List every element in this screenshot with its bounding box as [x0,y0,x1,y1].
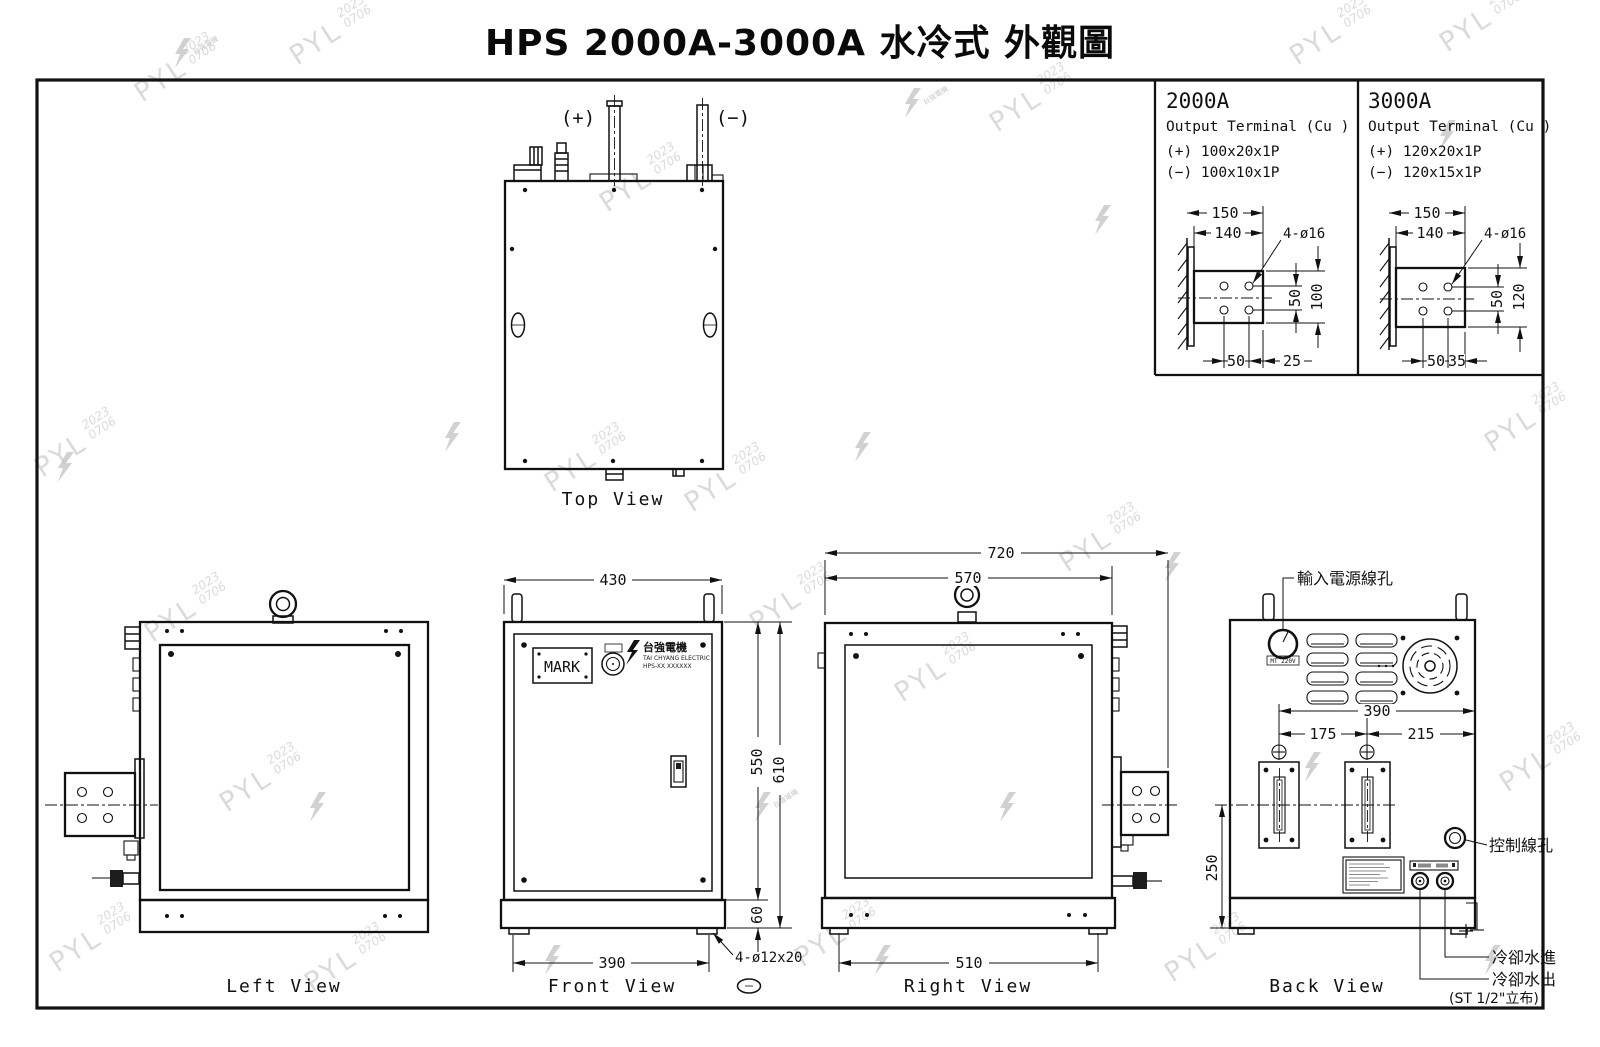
cable-gland [125,627,140,649]
water-inlet-fitting [1437,873,1453,889]
lightning-logo-icon [626,640,640,665]
dim-720: 720 [987,544,1014,562]
dim-510: 510 [955,954,982,972]
spec-plate [1343,857,1404,893]
plus-spec: (+) 120x20x1P [1368,144,1482,160]
side-panel [160,645,409,890]
power-inlet-hole: MT 220V [1267,630,1299,665]
cabinet-base [501,900,725,928]
hinge [818,653,1119,711]
cooling-fan [1401,636,1460,696]
technical-drawing: 台強電機 台強電機 台強電機 2000A Output Terminal (Cu… [0,0,1600,1047]
drain-bracket [1459,903,1484,938]
cabinet-outline [825,623,1112,898]
drawing-sheet: PYL20230706 PYL20230706 PYL20230706 PYL2… [0,0,1600,1047]
cable-gland [1112,626,1127,647]
slot-note: 4-ø12x20 [735,950,802,966]
lifting-post [1456,594,1467,620]
dim-25: 25 [1283,352,1301,370]
top-view-label: Top View [562,489,665,510]
water-pipe [1112,872,1162,889]
busbar-plate [1194,271,1263,323]
dim-610: 610 [770,756,788,783]
logo-chinese: 台強電機 [643,640,687,654]
watermark-company: 台強電機 [921,84,949,107]
dim-390: 390 [1363,702,1390,720]
dim-550: 550 [748,748,766,775]
side-handle [511,313,717,337]
inlet-label: MT 220V [1270,658,1296,665]
back-view-label: Back View [1269,976,1385,997]
side-panel [845,645,1092,878]
gland-fitting [124,841,138,860]
water-out-annotation: 冷卻水出 [1492,970,1556,989]
dim-150: 150 [1211,204,1238,222]
lifting-post [1263,594,1274,620]
lifting-post [704,594,714,622]
front-view-label: Front View [548,976,676,997]
dim-35: 35 [1448,352,1466,370]
model-label-2000a: 2000A [1166,89,1230,113]
plus-symbol-icon [1360,745,1374,759]
brand-logo: 台強電機 TAI CHYANG ELECTRIC HPS-XX XXXXXX [626,640,710,670]
dim-120: 120 [1510,283,1528,310]
dim-570: 570 [954,569,981,587]
dim-50v: 50 [1488,290,1506,308]
wall-hatch [1380,243,1389,349]
detail-panel-3000a: 3000A Output Terminal (Cu ) (+) 120x20x1… [1368,89,1551,370]
water-in-annotation: 冷卻水進 [1492,948,1556,967]
dim-50b: 50 [1427,352,1445,370]
water-outlet-fitting [1412,873,1428,889]
control-wire-hole [1445,828,1465,848]
vent-louvers [1307,634,1397,704]
minus-spec: (−) 100x10x1P [1166,165,1280,181]
hole-note: 4-ø16 [1283,226,1325,242]
dim-215: 215 [1407,725,1434,743]
right-view: 720 570 510 Right View [818,544,1180,997]
control-hole-annotation: 控制線孔 [1489,836,1553,855]
dim-50v: 50 [1286,289,1304,307]
dim-100: 100 [1308,283,1326,310]
water-spec-annotation: (ST 1/2"立布) [1449,991,1539,1007]
cabinet-base [822,898,1115,928]
dim-60: 60 [748,906,766,924]
logo-model: HPS-XX XXXXXX [643,663,692,670]
detail-panel-2000a: 2000A Output Terminal (Cu ) (+) 100x20x1… [1166,89,1349,370]
left-view-label: Left View [226,976,342,997]
main-border [37,80,1543,1008]
eyebolt [955,583,979,622]
dim-430: 430 [599,571,626,589]
logo-english: TAI CHYANG ELECTRIC [642,655,710,662]
eyebolt [270,591,296,623]
terminal-subtitle: Output Terminal (Cu ) [1166,119,1349,135]
busbar-plate [1396,268,1465,327]
dim-50b: 50 [1227,352,1245,370]
slot-symbol [738,979,761,993]
front-view: MARK 台強電機 TAI CHYANG ELECTRIC HPS-XX XXX… [501,571,802,997]
minus-label: (−) [716,107,750,129]
dim-150: 150 [1413,204,1440,222]
hole-note: 4-ø16 [1484,226,1526,242]
power-hole-annotation: 輸入電源線孔 [1297,569,1393,588]
dim-250: 250 [1203,854,1221,881]
dim-140: 140 [1416,224,1443,242]
terminal-subtitle: Output Terminal (Cu ) [1368,119,1551,135]
lifting-post [512,594,522,622]
plus-busbar [590,95,637,186]
power-lamp [602,644,624,675]
back-view: MT 220V 輸入電源線孔 [1203,569,1556,1007]
right-view-label: Right View [904,976,1032,997]
dim-175: 175 [1309,725,1336,743]
mark-plate: MARK [533,648,592,683]
cabinet-top-outline [505,181,723,469]
top-view: (+) (−) Top View [505,95,750,510]
mark-label: MARK [544,658,580,676]
cabinet-base [1230,898,1475,928]
left-view: Left View [45,591,428,997]
minus-spec: (−) 120x15x1P [1368,165,1482,181]
model-label-3000a: 3000A [1368,89,1432,113]
water-port-label [1410,861,1458,870]
output-terminal [1102,757,1180,851]
plus-label: (+) [561,107,595,129]
dim-390: 390 [598,954,625,972]
door-latch [671,756,686,787]
cabinet-outline [140,622,428,900]
wall-hatch [1178,243,1187,349]
watermark-company: 台強電機 [191,34,219,57]
bottom-tab [606,469,684,480]
cable-gland [514,143,568,181]
water-pipe [92,870,139,887]
plus-spec: (+) 100x20x1P [1166,144,1280,160]
dim-140: 140 [1214,224,1241,242]
